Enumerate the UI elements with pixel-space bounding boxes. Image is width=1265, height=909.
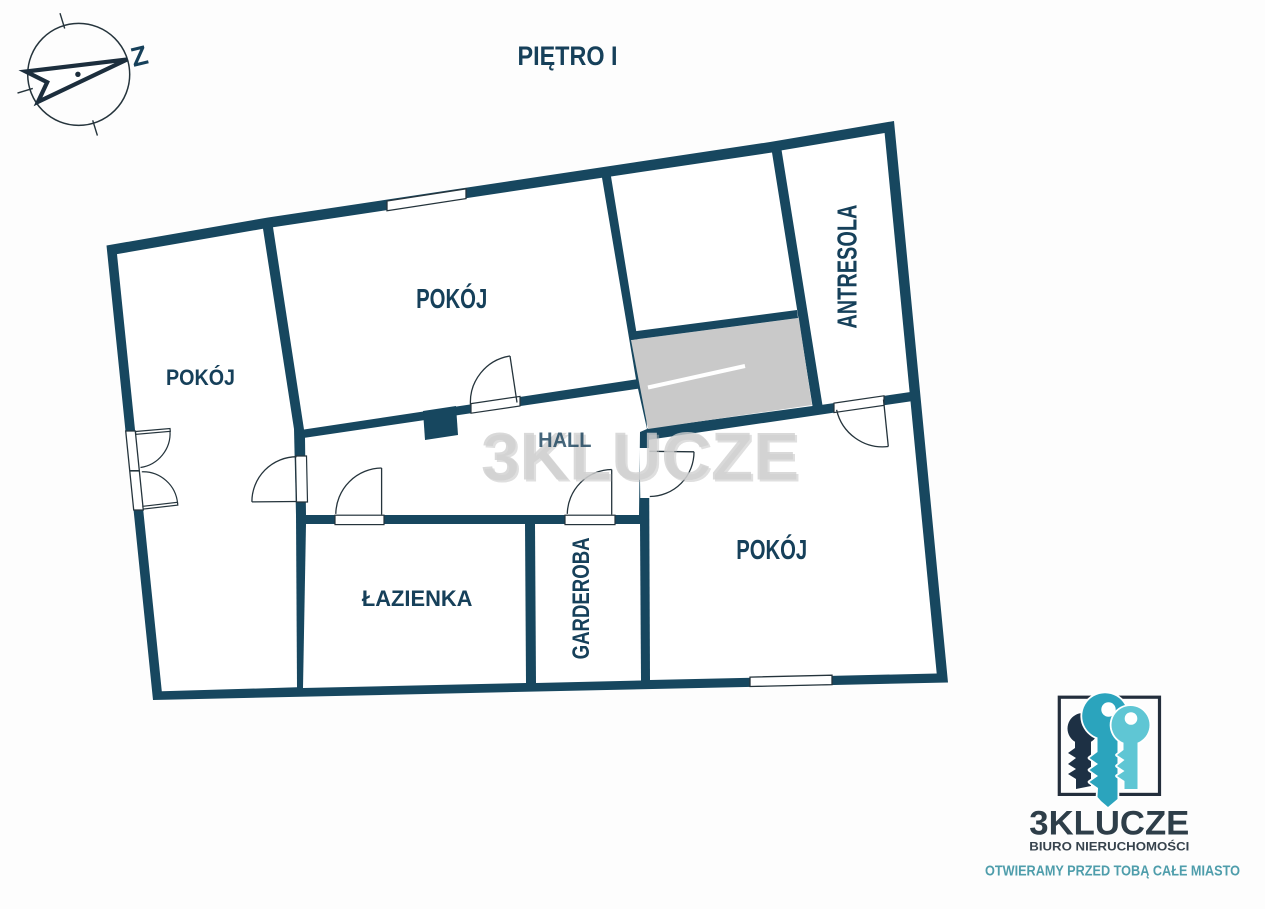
svg-text:POKÓJ: POKÓJ bbox=[166, 365, 235, 390]
svg-text:POKÓJ: POKÓJ bbox=[416, 283, 487, 314]
svg-text:GARDEROBA: GARDEROBA bbox=[568, 537, 595, 659]
svg-text:3KLUCZE: 3KLUCZE bbox=[1029, 804, 1189, 842]
svg-text:3KLUCZE: 3KLUCZE bbox=[481, 419, 799, 495]
svg-text:HALL: HALL bbox=[538, 429, 591, 452]
svg-text:POKÓJ: POKÓJ bbox=[736, 534, 807, 565]
svg-text:ANTRESOLA: ANTRESOLA bbox=[832, 205, 863, 329]
svg-text:OTWIERAMY PRZED TOBĄ CAŁE MIAS: OTWIERAMY PRZED TOBĄ CAŁE MIASTO bbox=[985, 863, 1240, 880]
svg-text:BIURO NIERUCHOMOŚCI: BIURO NIERUCHOMOŚCI bbox=[1029, 838, 1189, 853]
svg-text:ŁAZIENKA: ŁAZIENKA bbox=[362, 586, 473, 611]
svg-text:PIĘTRO I: PIĘTRO I bbox=[518, 41, 618, 71]
